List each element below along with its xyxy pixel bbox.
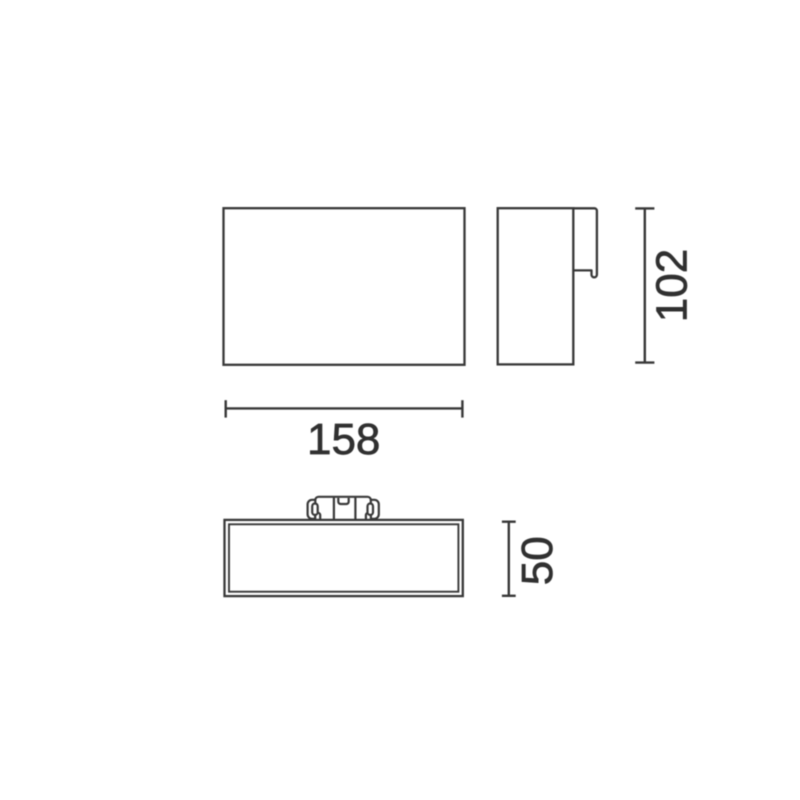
svg-text:50: 50 xyxy=(513,536,562,585)
svg-text:102: 102 xyxy=(648,249,697,322)
svg-text:158: 158 xyxy=(307,415,380,464)
